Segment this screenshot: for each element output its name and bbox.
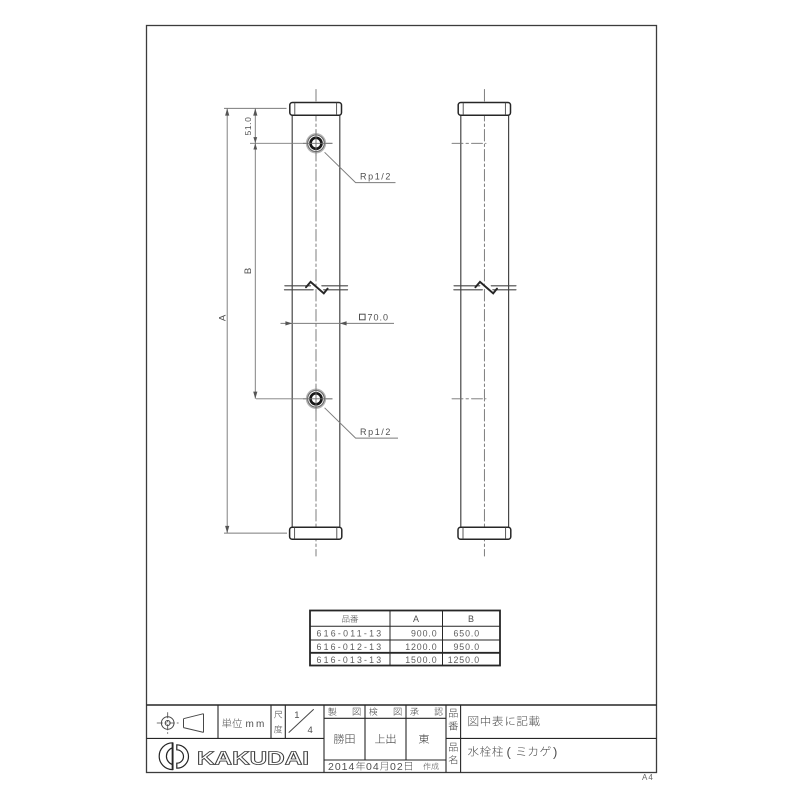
svg-text:650.0: 650.0 — [453, 628, 480, 638]
svg-text:Rp1/2: Rp1/2 — [360, 171, 392, 181]
svg-text:Rp1/2: Rp1/2 — [360, 427, 392, 437]
svg-text:616-013-13: 616-013-13 — [317, 655, 383, 665]
svg-text:B: B — [468, 614, 474, 624]
svg-text:51.0: 51.0 — [243, 117, 253, 136]
svg-text:616-012-13: 616-012-13 — [317, 642, 383, 652]
svg-text:A: A — [218, 314, 229, 321]
svg-text:04: 04 — [366, 761, 380, 773]
svg-text:KAKUDAI: KAKUDAI — [197, 748, 309, 769]
svg-text:2014: 2014 — [328, 761, 355, 773]
svg-text:02: 02 — [390, 761, 404, 773]
svg-text:B: B — [243, 268, 254, 274]
svg-text:1250.0: 1250.0 — [448, 655, 480, 665]
svg-text:1500.0: 1500.0 — [405, 655, 437, 665]
svg-text:A: A — [413, 614, 419, 624]
svg-text:950.0: 950.0 — [453, 642, 480, 652]
svg-text:mm: mm — [246, 719, 267, 730]
svg-text:1200.0: 1200.0 — [405, 642, 437, 652]
svg-text:A4: A4 — [642, 773, 654, 782]
svg-text:1: 1 — [294, 710, 299, 721]
svg-text:70.0: 70.0 — [368, 313, 390, 323]
svg-text:4: 4 — [308, 725, 313, 736]
svg-text:(: ( — [507, 745, 512, 760]
svg-text:): ) — [553, 745, 557, 760]
svg-text:900.0: 900.0 — [411, 628, 438, 638]
